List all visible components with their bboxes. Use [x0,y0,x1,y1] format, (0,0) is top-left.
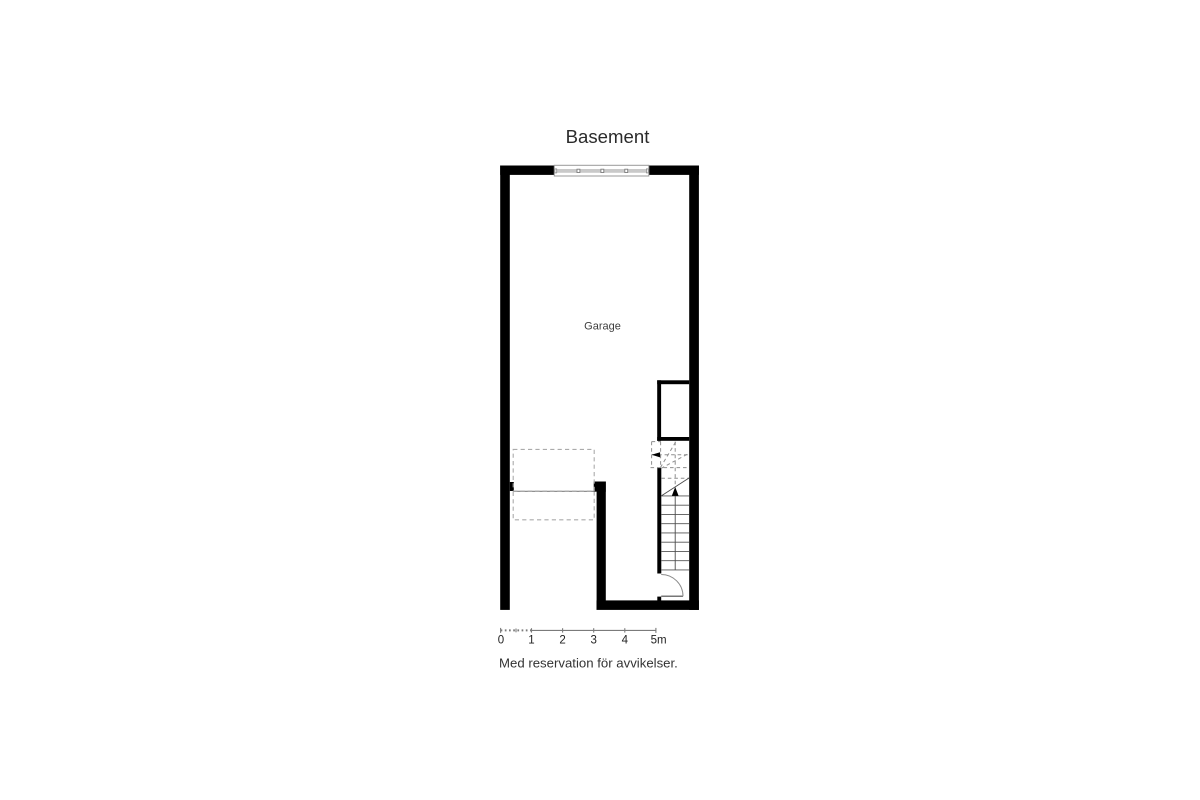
svg-text:3: 3 [590,635,596,647]
svg-text:5m: 5m [651,635,667,647]
svg-text:Basement: Basement [566,126,651,147]
svg-text:Garage: Garage [584,321,621,333]
svg-text:1: 1 [528,635,534,647]
svg-text:4: 4 [622,635,629,647]
svg-text:2: 2 [559,635,565,647]
svg-text:Med reservation för avvikelser: Med reservation för avvikelser. [499,656,678,671]
svg-text:0: 0 [498,635,504,647]
